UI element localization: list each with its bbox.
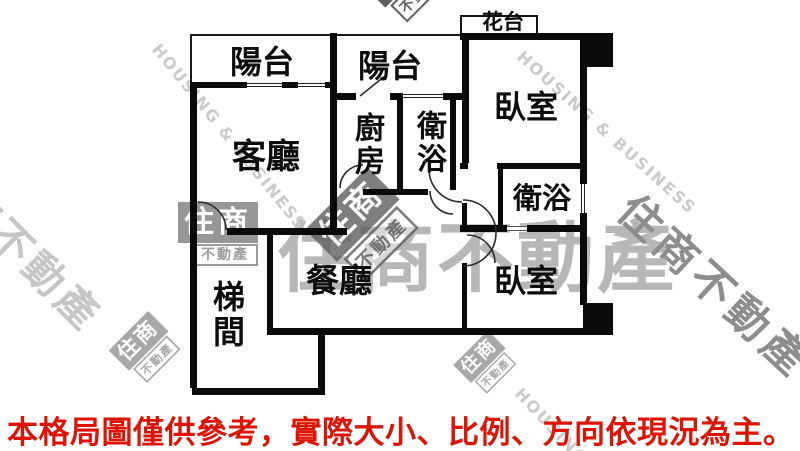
floor-plan-canvas: 住商不動產 住商不動產 住商不動產 HOUSING & BUSINESS HOU…	[0, 0, 800, 451]
label-balcony-left: 陽台	[230, 46, 294, 78]
label-stairwell: 梯間	[211, 280, 243, 350]
label-bathroom-top: 衛浴	[413, 110, 443, 176]
label-kitchen: 廚房	[351, 112, 381, 178]
corridor-door-arc	[463, 200, 496, 266]
label-dining-room: 餐廳	[306, 264, 372, 297]
label-flower-bed: 花台	[482, 12, 524, 33]
label-bedroom-top: 臥室	[494, 91, 558, 123]
label-balcony-right: 陽台	[358, 50, 422, 82]
entrance-door-arc	[198, 202, 226, 230]
disclaimer-text: 本格局圖僅供參考，實際大小、比例、方向依現況為主。	[7, 407, 795, 451]
label-bedroom-bottom: 臥室	[494, 265, 558, 297]
label-living-room: 客廳	[232, 140, 300, 174]
label-bathroom-bottom: 衛浴	[513, 184, 571, 213]
bedroom-bottom-door-arc	[467, 235, 495, 263]
